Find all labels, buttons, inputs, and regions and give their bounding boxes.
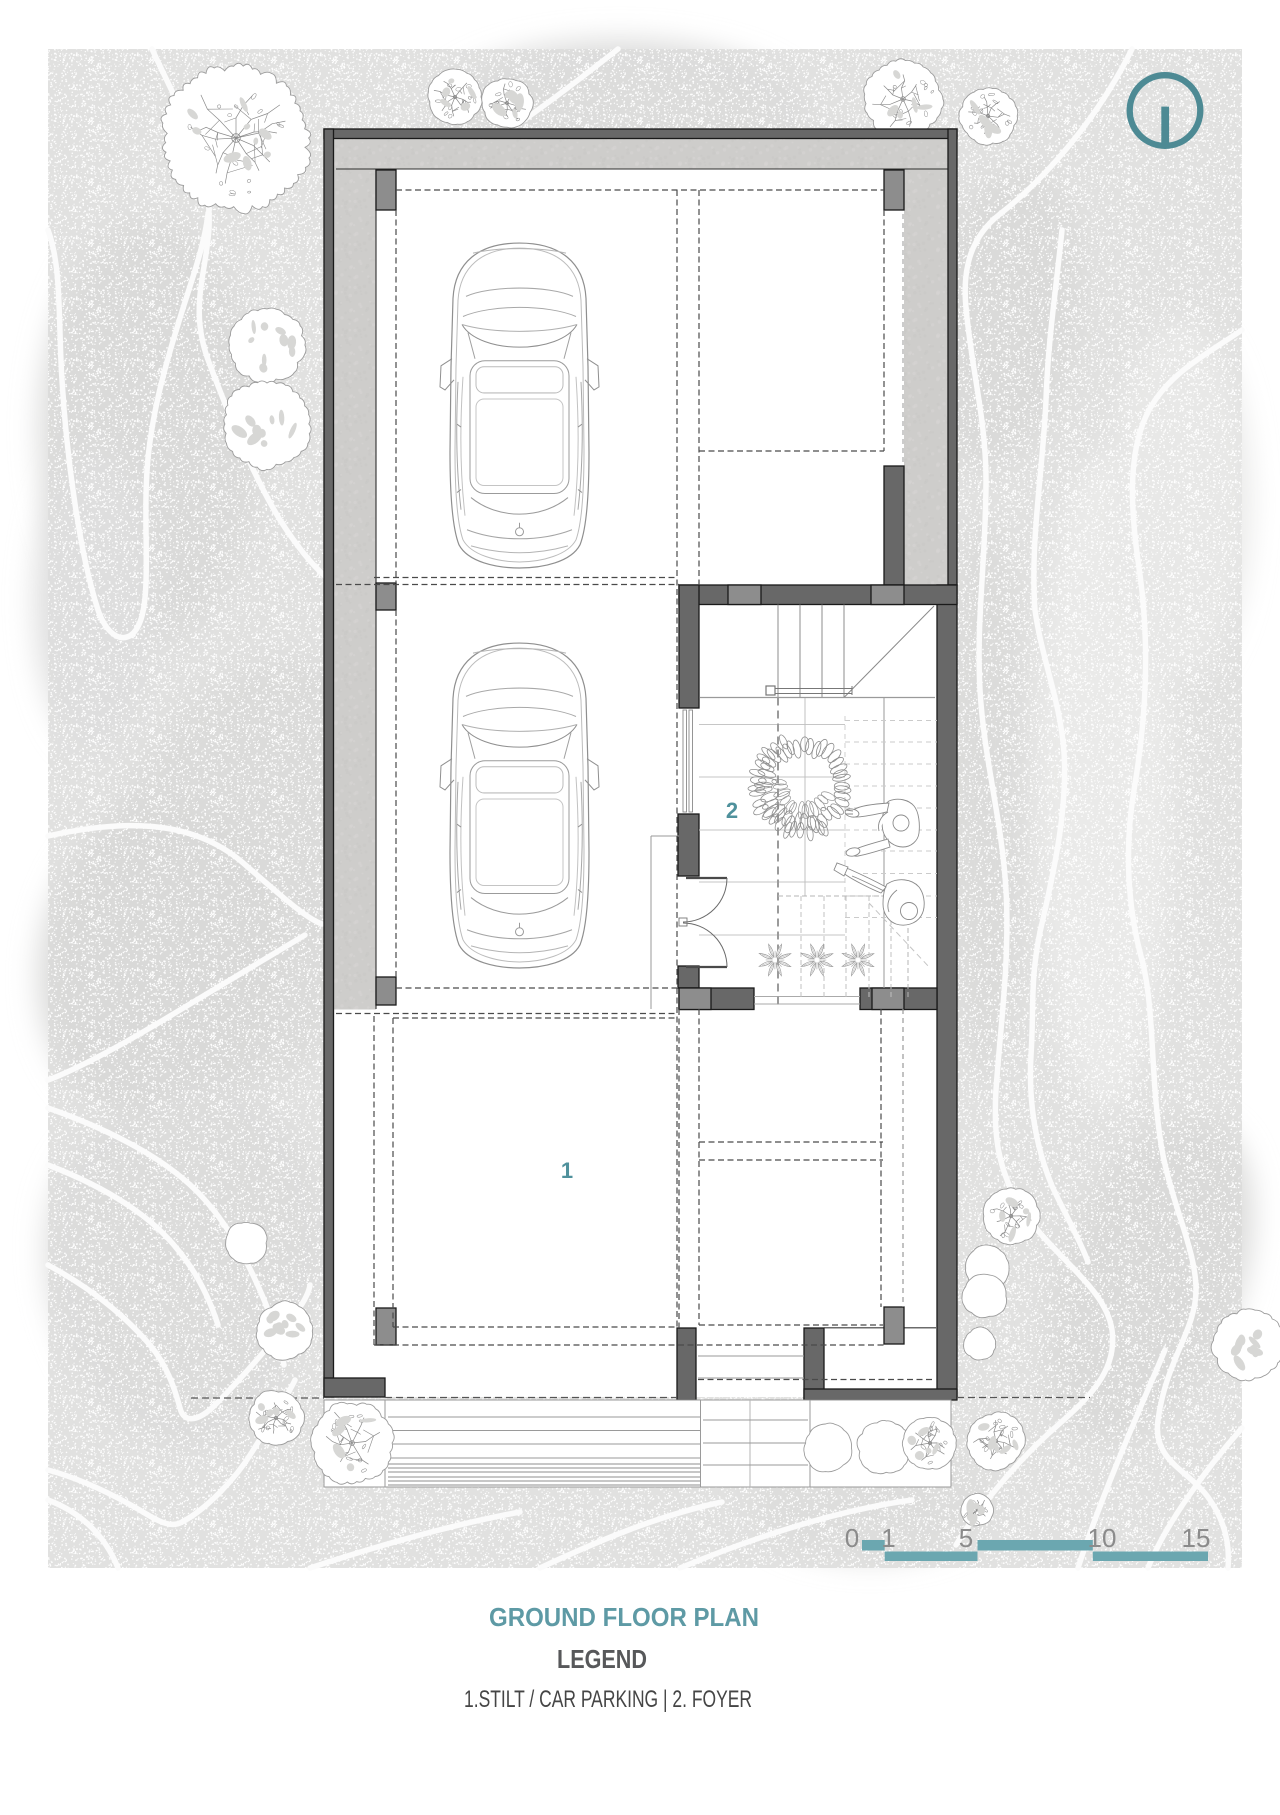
svg-text:10: 10 bbox=[1088, 1523, 1117, 1553]
svg-text:0: 0 bbox=[845, 1523, 859, 1553]
svg-text:LEGEND: LEGEND bbox=[557, 1644, 647, 1674]
svg-text:15: 15 bbox=[1182, 1523, 1211, 1553]
svg-text:GROUND FLOOR PLAN: GROUND FLOOR PLAN bbox=[489, 1602, 759, 1632]
svg-text:5: 5 bbox=[959, 1523, 973, 1553]
svg-text:1.STILT / CAR PARKING | 2. FOY: 1.STILT / CAR PARKING | 2. FOYER bbox=[464, 1686, 752, 1713]
svg-text:1: 1 bbox=[561, 1158, 573, 1183]
svg-text:1: 1 bbox=[881, 1523, 895, 1553]
svg-text:2: 2 bbox=[726, 798, 738, 823]
